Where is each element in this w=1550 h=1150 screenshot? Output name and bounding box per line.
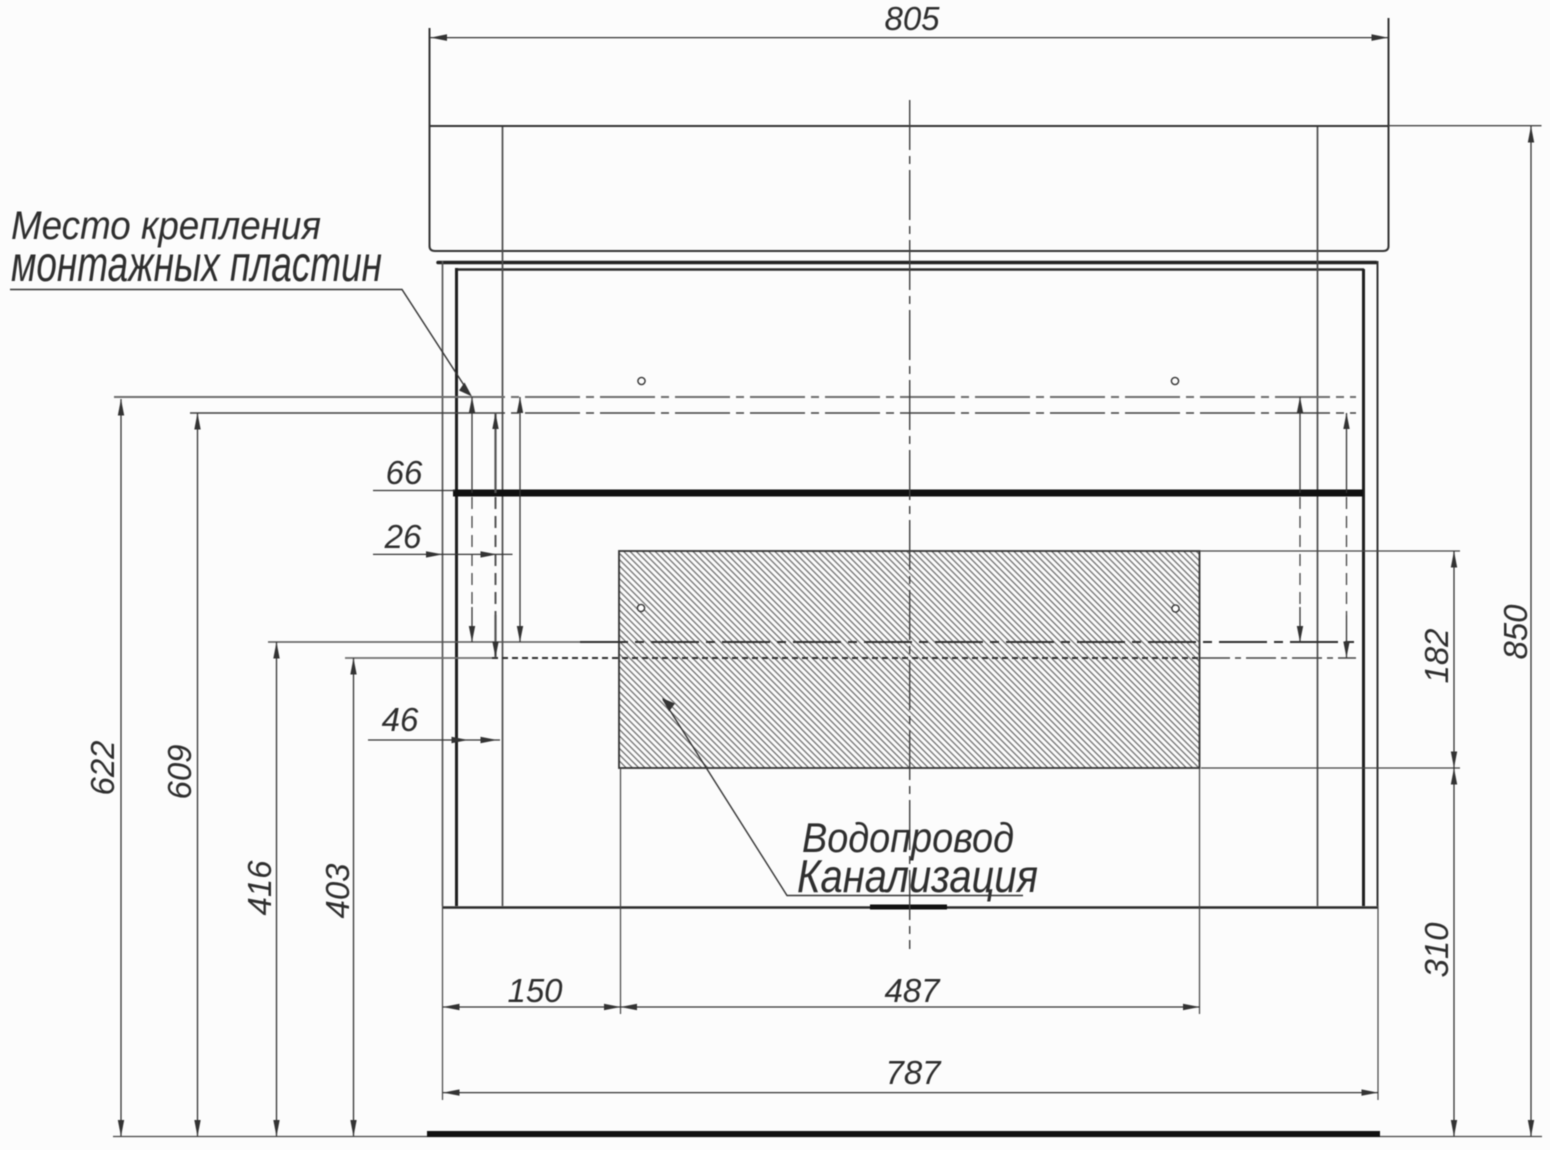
svg-text:310: 310 bbox=[1418, 922, 1455, 978]
svg-text:46: 46 bbox=[382, 701, 419, 738]
svg-text:Канализация: Канализация bbox=[797, 850, 1038, 902]
svg-text:850: 850 bbox=[1497, 604, 1534, 660]
svg-text:609: 609 bbox=[161, 744, 198, 799]
svg-text:403: 403 bbox=[319, 863, 356, 919]
svg-text:182: 182 bbox=[1418, 628, 1455, 683]
svg-text:26: 26 bbox=[384, 518, 422, 555]
svg-text:487: 487 bbox=[884, 972, 941, 1009]
svg-text:66: 66 bbox=[386, 454, 423, 491]
svg-text:416: 416 bbox=[241, 860, 278, 916]
svg-text:787: 787 bbox=[885, 1054, 942, 1091]
svg-text:150: 150 bbox=[507, 972, 563, 1009]
svg-text:805: 805 bbox=[884, 0, 940, 37]
svg-text:монтажных пластин: монтажных пластин bbox=[11, 236, 382, 292]
svg-text:622: 622 bbox=[84, 740, 121, 795]
